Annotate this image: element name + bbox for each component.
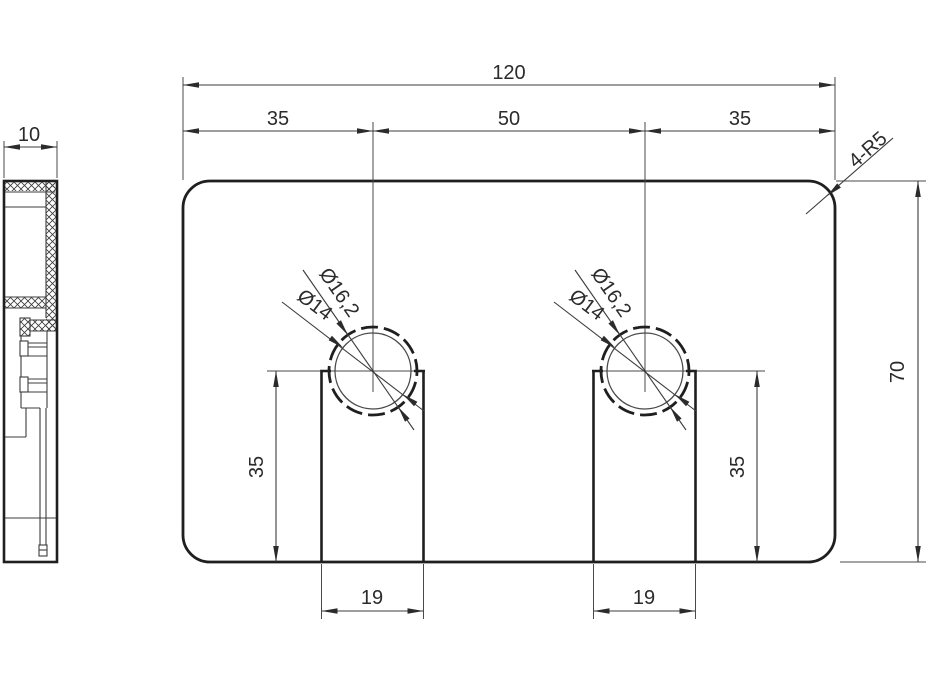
slot-width-right-label: 19	[633, 587, 655, 609]
slot-depth-left-label: 35	[246, 456, 268, 478]
side-section-view: 10	[4, 124, 57, 562]
overall-width-label: 120	[492, 62, 525, 84]
slot-width-left-label: 19	[361, 587, 383, 609]
dim-slot-width-left: 19	[322, 587, 424, 611]
technical-drawing-canvas: 10 120 35	[0, 0, 928, 686]
dim-slot-width-right: 19	[594, 587, 696, 611]
drawing-svg: 10 120 35	[0, 0, 928, 686]
hatch-mid-band	[5, 297, 46, 308]
slot-depth-right-label: 35	[727, 456, 749, 478]
hatch-arm-cap	[20, 318, 30, 336]
dim-overall-width: 120	[183, 62, 835, 85]
dim-overall-height: 70	[887, 181, 918, 562]
hatch-arm	[30, 320, 56, 331]
offset-left-label: 35	[267, 108, 289, 130]
hatch-right-wall	[46, 182, 56, 331]
offset-right-label: 35	[729, 108, 751, 130]
center-distance-label: 50	[498, 108, 520, 130]
overall-height-label: 70	[887, 361, 909, 383]
front-view	[183, 122, 835, 562]
dim-thickness: 10	[4, 124, 57, 178]
dim-hole-spacing: 35 50 35	[183, 108, 835, 131]
thickness-label: 10	[18, 124, 40, 146]
corner-radius-label: 4-R5	[844, 127, 891, 172]
